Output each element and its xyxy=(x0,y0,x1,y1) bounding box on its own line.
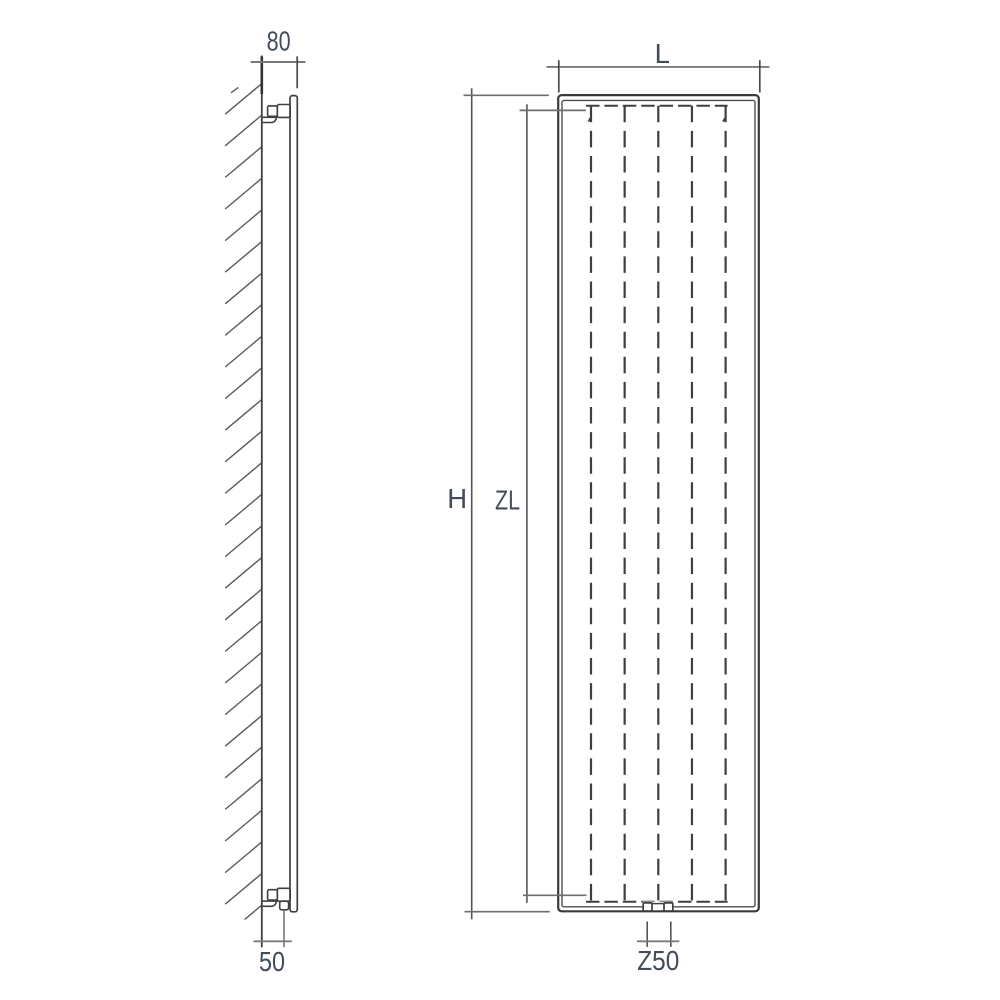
svg-text:L: L xyxy=(655,38,670,69)
svg-text:80: 80 xyxy=(267,26,291,57)
svg-text:50: 50 xyxy=(259,946,285,977)
svg-text:H: H xyxy=(447,483,467,514)
svg-text:ZL: ZL xyxy=(495,485,520,516)
svg-text:Z50: Z50 xyxy=(637,945,679,976)
